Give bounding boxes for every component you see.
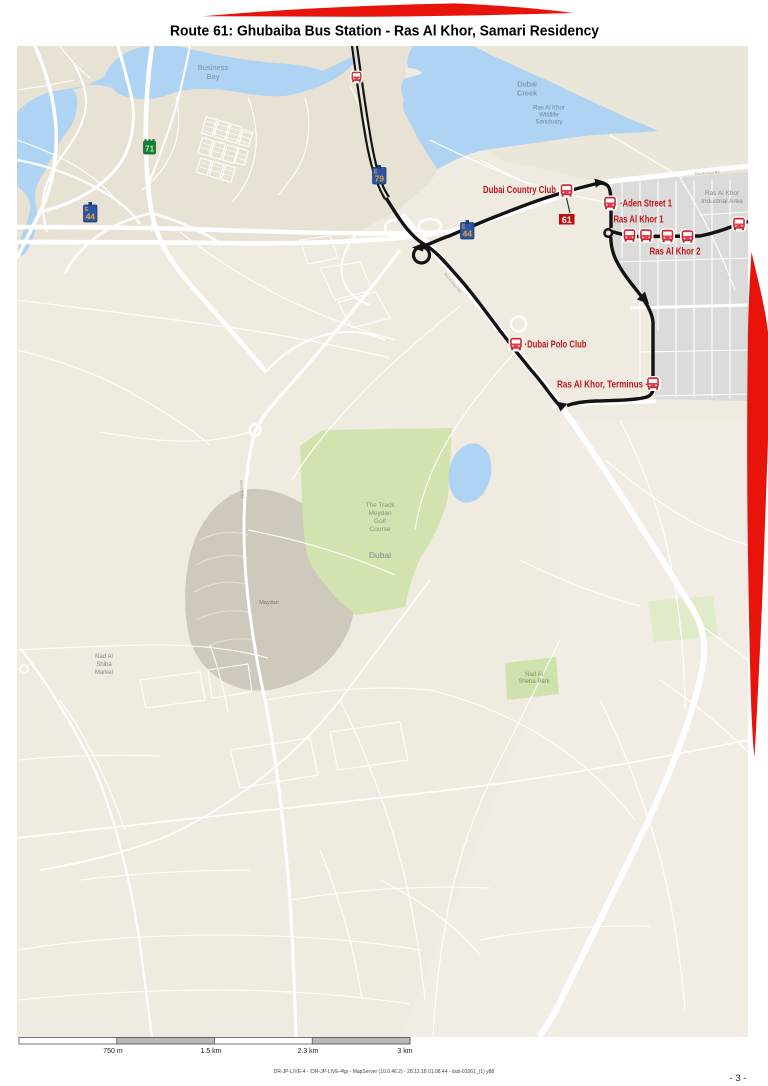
svg-text:71: 71 (145, 145, 154, 154)
svg-text:Golf: Golf (374, 518, 386, 525)
svg-text:1.5 km: 1.5 km (200, 1048, 221, 1055)
svg-text:Dubai Country Club: Dubai Country Club (483, 185, 556, 196)
svg-text:Course: Course (370, 526, 391, 533)
svg-text:3 km: 3 km (397, 1048, 412, 1055)
svg-text:Ras Al Khor 1: Ras Al Khor 1 (614, 215, 664, 226)
svg-text:Route 61: Ghubaiba Bus Station: Route 61: Ghubaiba Bus Station - Ras Al … (170, 24, 599, 40)
svg-text:DR-JP-LIVE-4 - \DR-JP-LIVE-4\j: DR-JP-LIVE-4 - \DR-JP-LIVE-4\jp - MapSer… (274, 1069, 495, 1075)
svg-text:750 m: 750 m (103, 1048, 123, 1055)
svg-text:The Track: The Track (366, 502, 396, 509)
svg-text:2.3 km: 2.3 km (297, 1048, 318, 1055)
svg-text:79: 79 (375, 174, 385, 184)
svg-text:61: 61 (562, 215, 572, 225)
svg-text:·Dubai Polo Club: ·Dubai Polo Club (525, 340, 587, 351)
svg-text:Business: Business (198, 63, 229, 72)
svg-text:Ras Al Khor: Ras Al Khor (705, 190, 740, 197)
svg-text:Ras Al Khor, Terminus ·: Ras Al Khor, Terminus · (557, 380, 648, 391)
svg-text:Ras Al Khor: Ras Al Khor (533, 106, 565, 112)
svg-text:Nad Al: Nad Al (525, 672, 543, 678)
svg-text:44: 44 (463, 229, 473, 239)
svg-text:Shiba: Shiba (96, 662, 112, 668)
svg-text:Creek: Creek (517, 89, 537, 98)
svg-text:- 3 -: - 3 - (730, 1073, 747, 1084)
svg-text:Bay: Bay (207, 72, 220, 81)
svg-text:Meydan: Meydan (368, 510, 392, 517)
svg-text:Ras Al Khor 2: Ras Al Khor 2 (650, 247, 701, 258)
svg-text:·Aden Street 1: ·Aden Street 1 (620, 199, 672, 210)
svg-text:Sheba Park: Sheba Park (518, 679, 550, 685)
svg-text:Sanctuary: Sanctuary (535, 120, 562, 126)
svg-text:Nad Al: Nad Al (95, 654, 113, 660)
svg-text:Maydan: Maydan (259, 600, 279, 606)
svg-text:Wildlife: Wildlife (539, 113, 559, 119)
svg-text:Dubai: Dubai (369, 550, 391, 560)
svg-text:44: 44 (86, 212, 96, 222)
svg-text:Dubai: Dubai (517, 80, 537, 89)
svg-text:Market: Market (95, 670, 114, 676)
svg-text:Industrial Area: Industrial Area (701, 198, 743, 205)
